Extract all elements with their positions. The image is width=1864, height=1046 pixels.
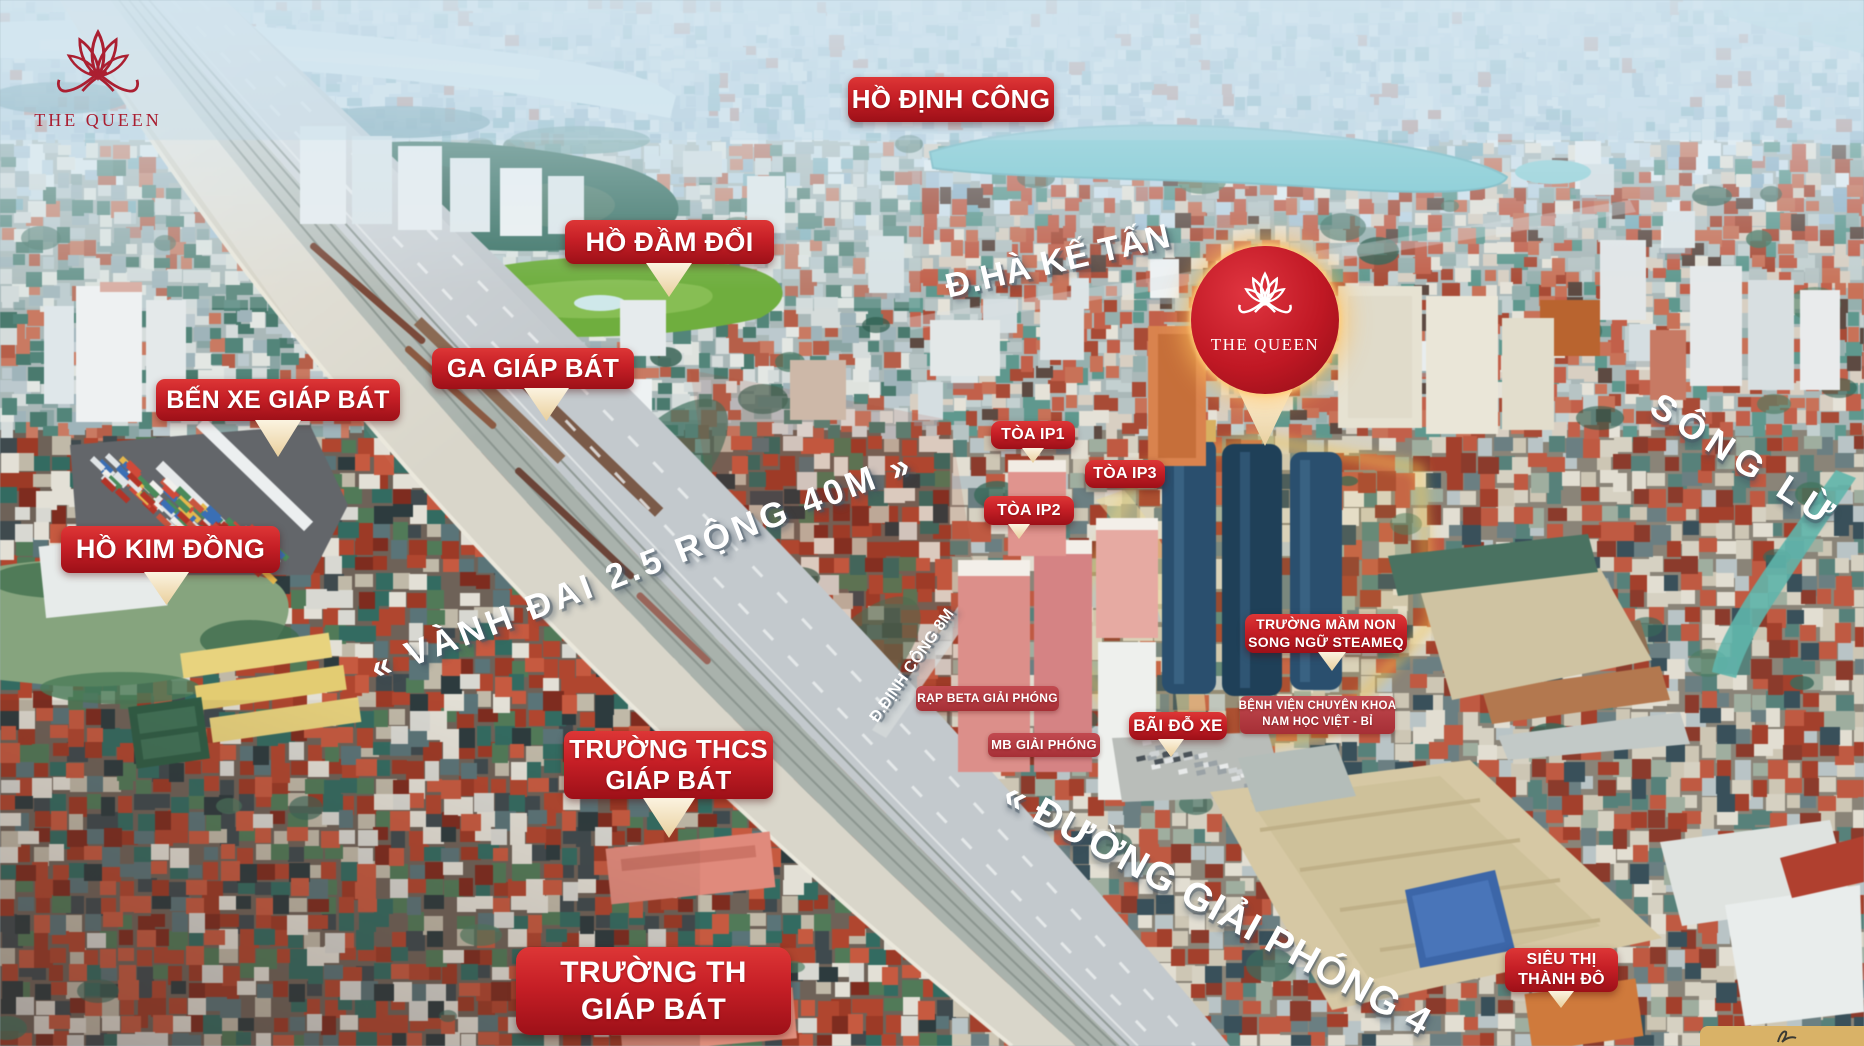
svg-text:THE QUEEN: THE QUEEN (1211, 335, 1319, 354)
